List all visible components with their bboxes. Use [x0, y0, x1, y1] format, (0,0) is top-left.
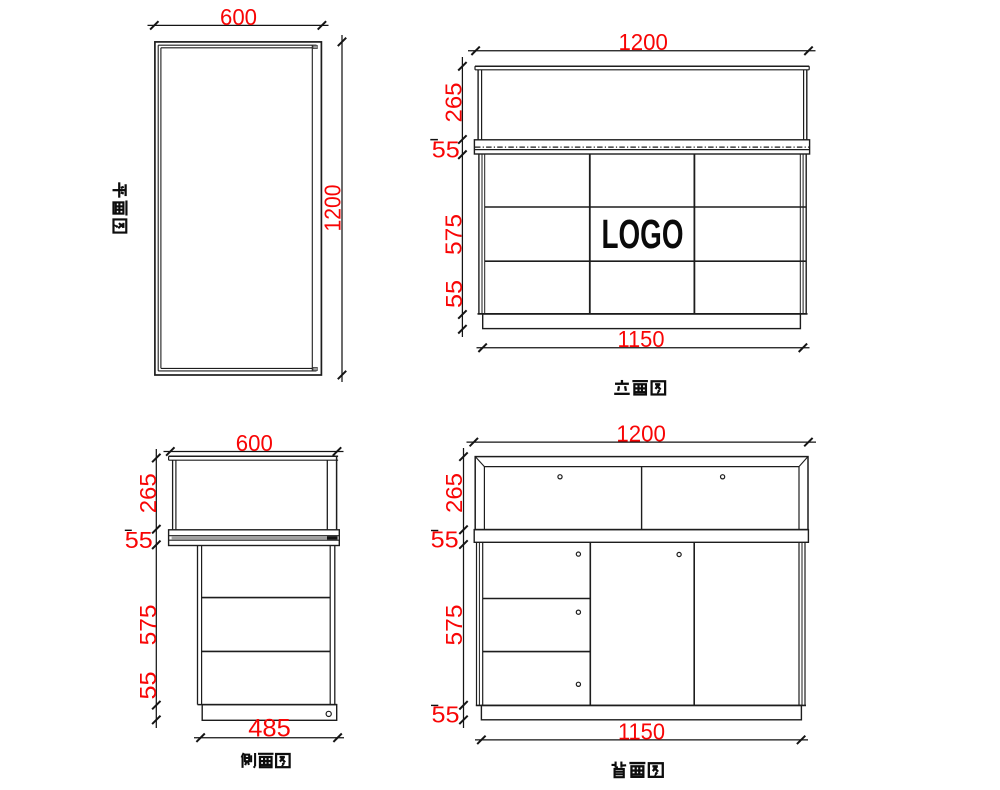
svg-text:1150: 1150	[618, 326, 665, 352]
svg-text:1200: 1200	[618, 29, 668, 55]
svg-text:265: 265	[440, 83, 466, 123]
svg-text:485: 485	[248, 715, 291, 743]
svg-text:265: 265	[135, 473, 161, 513]
svg-text:55: 55	[441, 280, 467, 308]
svg-text:1200: 1200	[320, 185, 346, 232]
svg-text:55: 55	[432, 136, 460, 162]
svg-text:1200: 1200	[616, 421, 666, 447]
svg-text:600: 600	[220, 4, 257, 30]
svg-text:LOGO: LOGO	[602, 211, 684, 257]
svg-text:575: 575	[440, 214, 466, 255]
svg-text:55: 55	[432, 701, 460, 727]
svg-text:265: 265	[441, 473, 467, 513]
svg-text:55: 55	[125, 527, 153, 553]
svg-text:55: 55	[135, 672, 161, 700]
svg-text:600: 600	[236, 430, 273, 456]
svg-text:575: 575	[135, 604, 161, 645]
svg-text:575: 575	[441, 605, 467, 646]
svg-text:55: 55	[431, 527, 459, 553]
svg-text:1150: 1150	[618, 718, 665, 744]
